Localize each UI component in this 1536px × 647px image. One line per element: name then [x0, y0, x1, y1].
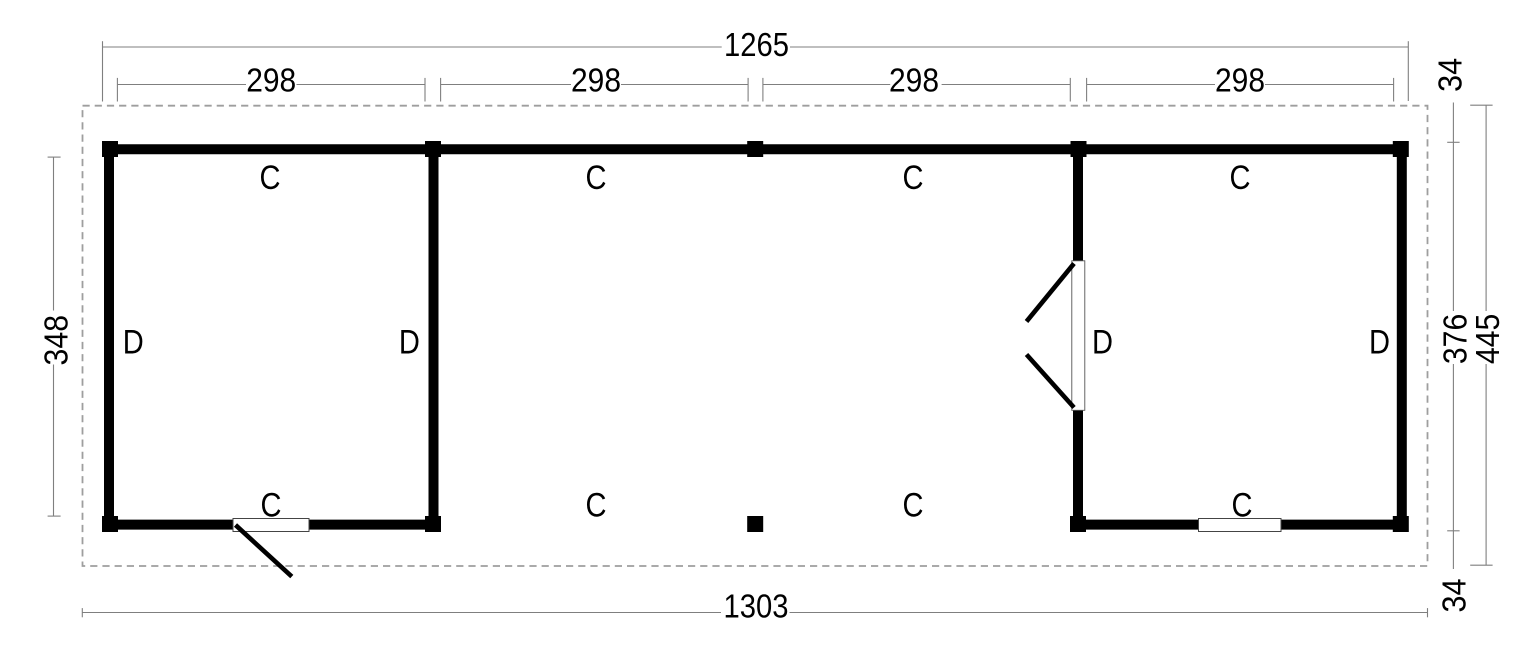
svg-text:34: 34: [1432, 58, 1469, 92]
svg-text:D: D: [399, 324, 420, 362]
svg-text:C: C: [260, 159, 281, 197]
svg-text:298: 298: [571, 62, 621, 99]
svg-text:C: C: [261, 486, 282, 524]
svg-text:D: D: [1369, 324, 1390, 362]
svg-text:445: 445: [1469, 314, 1506, 365]
svg-text:348: 348: [38, 315, 75, 366]
svg-text:298: 298: [246, 62, 296, 99]
svg-text:C: C: [903, 159, 924, 197]
svg-text:D: D: [1092, 324, 1113, 362]
svg-text:C: C: [1230, 159, 1251, 197]
svg-text:1303: 1303: [724, 587, 789, 624]
svg-text:D: D: [123, 324, 144, 362]
svg-text:C: C: [1232, 486, 1253, 524]
svg-text:1265: 1265: [724, 26, 789, 63]
svg-text:C: C: [903, 486, 924, 524]
svg-text:298: 298: [1215, 62, 1265, 99]
svg-text:298: 298: [889, 62, 939, 99]
svg-text:C: C: [586, 159, 607, 197]
svg-text:34: 34: [1436, 579, 1473, 613]
svg-text:C: C: [586, 486, 607, 524]
